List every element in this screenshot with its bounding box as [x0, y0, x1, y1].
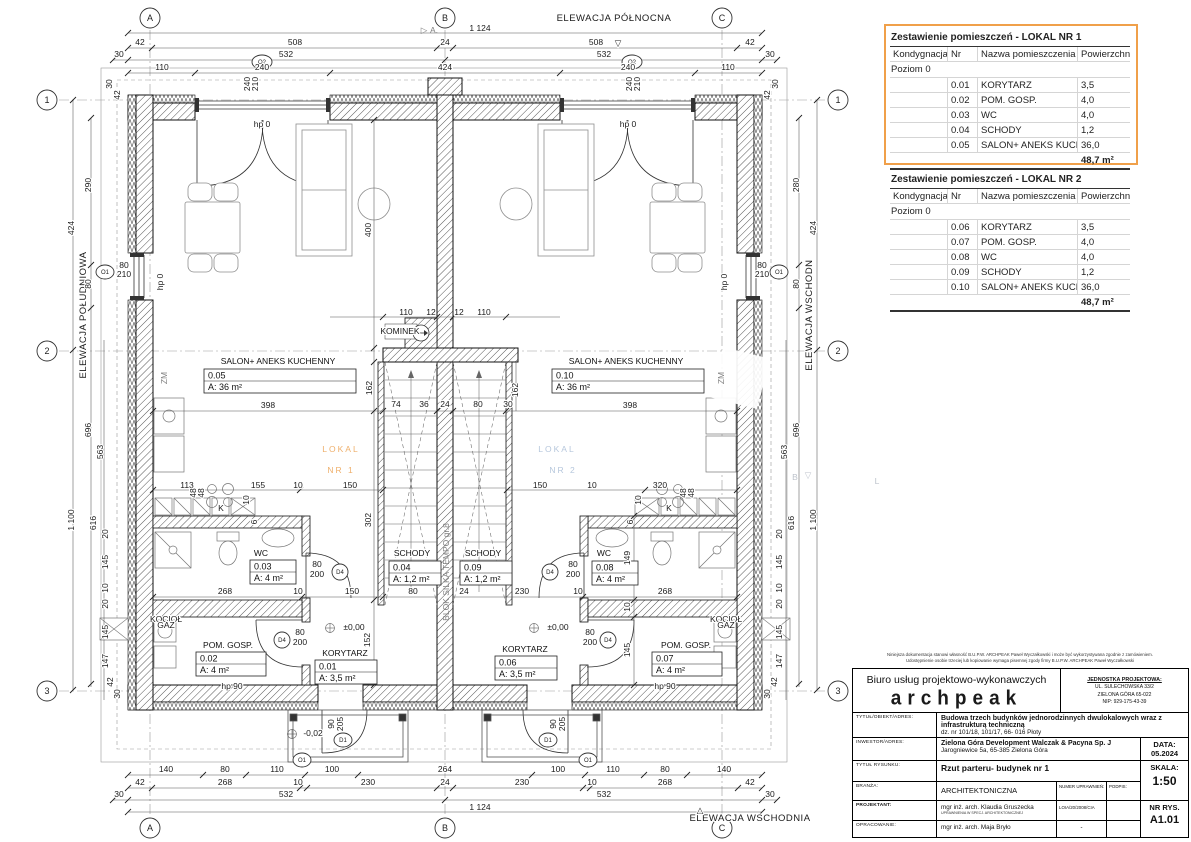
dim-label: 10: [774, 583, 784, 593]
dim-label: 563: [95, 445, 105, 459]
dim-label: 30: [104, 79, 114, 89]
dim-label: ▷: [421, 25, 428, 35]
watermark-lokal-2: NR 2: [549, 465, 576, 475]
dim-label: 12: [426, 307, 436, 317]
dim-label: 48: [196, 488, 206, 498]
elevation-east-right-label: ELEWACJA WSCHODN: [804, 259, 815, 370]
axis-c-bottom-label: C: [719, 823, 726, 833]
dim-label: 424: [438, 62, 452, 72]
dim-label: 200: [310, 569, 324, 579]
dim-label: 302: [363, 513, 373, 527]
dim-label: hp 0: [620, 119, 637, 129]
dim-label: 268: [218, 586, 232, 596]
dim-label: 240: [255, 62, 269, 72]
dim-label: 30: [762, 689, 772, 699]
table-row: 0.05SALON+ ANEKS KUCH...36,0: [890, 138, 1130, 153]
dim-label: A.: [430, 25, 438, 35]
dim-label: GAZ: [157, 620, 174, 630]
dim-label: 400: [363, 223, 373, 237]
dim-label: 1 100: [808, 509, 818, 531]
elevation-north-label: ELEWACJA PÓŁNOCNA: [557, 13, 672, 24]
dim-label: 230: [361, 777, 375, 787]
dim-label: ±0,00: [547, 622, 568, 632]
dim-label: 268: [218, 777, 232, 787]
dim-label: 210: [250, 77, 260, 91]
dim-label: 508: [288, 37, 302, 47]
dim-label: KOMINEK: [380, 326, 420, 336]
dim-label: 110: [606, 764, 620, 774]
dim-label: 152: [362, 633, 372, 647]
dim-label: 280: [791, 178, 801, 192]
room-name-label: SALON+ ANEKS KUCHENNY: [221, 356, 336, 366]
dim-label: hp 90: [221, 681, 243, 691]
schedule-title: Zestawienie pomieszczeń - LOKAL NR 2: [890, 172, 1130, 189]
table-row: 0.07POM. GOSP.4,0: [890, 235, 1130, 250]
dim-label: 30: [112, 689, 122, 699]
sheet-number-cell: NR RYS. A1.01: [1141, 801, 1188, 837]
dim-label: K: [666, 503, 672, 513]
dim-label: 10: [241, 495, 251, 505]
dim-label: 80: [568, 559, 578, 569]
room-area: A: 1,2 m²: [464, 574, 501, 584]
room-name-label: SCHODY: [465, 548, 502, 558]
window-o1-right-label: O1: [775, 270, 784, 276]
dim-label: 205: [335, 717, 345, 731]
room-area: A: 4 m²: [596, 574, 625, 584]
dim-label: 110: [270, 764, 284, 774]
dim-label: -0,02: [303, 728, 323, 738]
dim-label: 24: [440, 399, 450, 409]
designer-signature-cell: [1107, 801, 1141, 821]
dim-label: 80: [220, 764, 230, 774]
designer-label: PROJEKTANT:: [853, 801, 937, 821]
dim-label: 80: [473, 399, 483, 409]
room-number: 0.07: [656, 654, 674, 664]
investor-value: Zielona Góra Development Walczak & Pacyn…: [937, 738, 1141, 761]
archpeak-logo: archpeak: [853, 687, 1060, 710]
table-row: 0.08WC4,0: [890, 250, 1130, 265]
door-d4-label: D4: [336, 570, 344, 576]
door-d4-label: D4: [604, 638, 612, 644]
dim-label: 10: [633, 495, 643, 505]
watermark-l: L: [875, 476, 880, 486]
room-number: 0.02: [200, 654, 218, 664]
watermark-bv: ▽: [805, 470, 812, 480]
dim-label: 532: [597, 49, 611, 59]
dim-label: 42: [112, 90, 122, 100]
dim-label: 110: [721, 62, 735, 72]
door-d1-right-label: D1: [544, 738, 552, 744]
dim-label: ZM: [159, 372, 169, 384]
dim-label: 42: [769, 677, 779, 687]
dim-label: 147: [100, 654, 110, 668]
designer-value: mgr inż. arch. Klaudia Gruszecka UPRAWNI…: [937, 801, 1057, 821]
dim-label: 696: [83, 423, 93, 437]
branch-value: ARCHITEKTONICZNA: [937, 782, 1057, 801]
room-name-label: KORYTARZ: [502, 644, 548, 654]
dim-label: 145: [774, 555, 784, 569]
dim-label: 10: [293, 480, 303, 490]
window-o1-porch-right-label: O1: [584, 758, 593, 764]
dim-label: 80: [791, 279, 801, 289]
dim-label: 20: [100, 529, 110, 539]
dim-label: 149: [622, 551, 632, 565]
dim-label: 240: [621, 62, 635, 72]
disclaimer-text: Niniejsza dokumentacja stanowi własność …: [853, 652, 1187, 664]
dim-label: 30: [765, 789, 775, 799]
dim-label: 48: [686, 488, 696, 498]
room-name-label: SCHODY: [394, 548, 431, 558]
axis-c-top-label: C: [719, 13, 726, 23]
schedule-header: Kondygnacja Nr Nazwa pomieszczenia Powie…: [890, 189, 1130, 204]
axis-1-left-label: 1: [44, 95, 49, 105]
room-area: A: 4 m²: [254, 573, 283, 583]
room-number: 0.09: [464, 563, 482, 573]
watermark-lokal-2: LOKAL: [538, 444, 575, 454]
dim-label: 42: [135, 777, 145, 787]
object-label: TYTUŁ/OBIEKT/ADRES:: [853, 713, 937, 738]
dim-label: 30: [770, 79, 780, 89]
dim-label: 10: [587, 777, 597, 787]
room-area: A: 3,5 m²: [319, 673, 356, 683]
dim-label: 398: [623, 400, 637, 410]
dim-label: 10: [622, 602, 632, 612]
dim-label: 264: [438, 764, 452, 774]
dim-label: 20: [774, 599, 784, 609]
floor-plan: SALON+ ANEKS KUCHENNY0.05A: 36 m²SALON+ …: [0, 0, 882, 842]
dim-label: 398: [261, 400, 275, 410]
schedule-total: 48,7 m²: [890, 295, 1130, 312]
table-row: 0.09SCHODY1,2: [890, 265, 1130, 280]
dim-label: 10: [293, 777, 303, 787]
room-number: 0.05: [208, 371, 226, 381]
axis-3-right-label: 3: [835, 686, 840, 696]
scale-cell: SKALA: 1:50: [1141, 761, 1188, 801]
dim-label: 74: [391, 399, 401, 409]
axis-2-right-label: 2: [835, 346, 840, 356]
room-area: A: 4 m²: [656, 665, 685, 675]
dim-label: 140: [717, 764, 731, 774]
dim-label: 616: [786, 516, 796, 530]
room-name-label: WC: [254, 548, 268, 558]
dim-label: 80: [660, 764, 670, 774]
dim-label: 145: [100, 625, 110, 639]
table-row: 0.04SCHODY1,2: [890, 123, 1130, 138]
editor-number: -: [1057, 821, 1107, 837]
dim-label: 6: [249, 519, 259, 524]
table-row: 0.02POM. GOSP.4,0: [890, 93, 1130, 108]
dim-label: hp 0: [254, 119, 271, 129]
dim-label: 80: [408, 586, 418, 596]
dim-label: 150: [345, 586, 359, 596]
room-area: A: 36 m²: [556, 382, 590, 392]
dim-label: 10: [100, 583, 110, 593]
dim-label: 1 124: [469, 23, 491, 33]
dim-label: 150: [533, 480, 547, 490]
dim-label: 80: [83, 279, 93, 289]
dim-label: GAZ: [717, 620, 734, 630]
dim-label: 110: [155, 62, 169, 72]
watermark-lokal-1: LOKAL: [322, 444, 359, 454]
license-number-label: NUMER UPRAWNIEŃ:: [1057, 782, 1107, 801]
dim-label: 424: [808, 221, 818, 235]
window-o1-left-label: O1: [101, 270, 110, 276]
room-area: A: 4 m²: [200, 665, 229, 675]
dim-label: 145: [100, 555, 110, 569]
schedule-level-row: Poziom 0: [890, 204, 1130, 220]
dim-label: 508: [589, 37, 603, 47]
dim-label: 20: [774, 529, 784, 539]
dim-label: 10: [293, 586, 303, 596]
dim-label: ZM: [716, 372, 726, 384]
dim-label: 24: [440, 777, 450, 787]
dim-label: 42: [745, 777, 755, 787]
dim-label: 24: [459, 586, 469, 596]
door-d1-left-label: D1: [339, 738, 347, 744]
room-number: 0.04: [393, 563, 411, 573]
axis-a-top-label: A: [147, 13, 153, 23]
room-schedule-lokal-1: Zestawienie pomieszczeń - LOKAL NR 1 Kon…: [890, 30, 1130, 170]
dim-label: 320: [653, 480, 667, 490]
dim-label: 12: [454, 307, 464, 317]
dim-label: 6: [625, 519, 635, 524]
window-o1-porch-left-label: O1: [298, 758, 307, 764]
dim-label: 210: [117, 269, 131, 279]
room-name-label: WC: [597, 548, 611, 558]
dim-label: 110: [477, 307, 491, 317]
dim-label: 268: [658, 586, 672, 596]
dim-label: 24: [440, 37, 450, 47]
axis-b-bottom-label: B: [442, 823, 448, 833]
dim-label: BLOK SILKA TEMPO gr.8: [441, 523, 451, 621]
room-area: A: 1,2 m²: [393, 574, 430, 584]
dim-label: 145: [774, 625, 784, 639]
schedule-level-row: Poziom 0: [890, 62, 1130, 78]
table-row: 0.10SALON+ ANEKS KUCH...36,0: [890, 280, 1130, 295]
room-number: 0.06: [499, 658, 517, 668]
door-d4-label: D4: [278, 638, 286, 644]
axis-2-left-label: 2: [44, 346, 49, 356]
drawing-title-label: TYTUŁ RYSUNKU:: [853, 761, 937, 782]
dim-label: 532: [279, 49, 293, 59]
title-block: Biuro usług projektowo-wykonawczych arch…: [852, 668, 1189, 838]
dim-label: 10: [587, 480, 597, 490]
room-number: 0.08: [596, 563, 614, 573]
dim-label: 80: [295, 627, 305, 637]
axis-1-right-label: 1: [835, 95, 840, 105]
branch-label: BRANŻA:: [853, 782, 937, 801]
dim-label: hp 0: [719, 273, 729, 290]
watermark-lokal-1: NR 1: [327, 465, 354, 475]
dim-label: 1 124: [469, 802, 491, 812]
dim-label: 200: [583, 637, 597, 647]
dim-label: 30: [503, 399, 513, 409]
room-number: 0.01: [319, 662, 337, 672]
dim-label: 10: [573, 586, 583, 596]
schedule-header: Kondygnacja Nr Nazwa pomieszczenia Powie…: [890, 47, 1130, 62]
dim-label: 210: [632, 77, 642, 91]
dim-label: 200: [293, 637, 307, 647]
dim-label: 42: [762, 90, 772, 100]
dim-label: 42: [105, 677, 115, 687]
dim-label: 205: [557, 717, 567, 731]
dim-label: 155: [251, 480, 265, 490]
dim-label: 147: [774, 654, 784, 668]
dim-label: 100: [551, 764, 565, 774]
axis-3-left-label: 3: [44, 686, 49, 696]
room-number: 0.03: [254, 562, 272, 572]
dim-label: 268: [658, 777, 672, 787]
drawing-sheet: SALON+ ANEKS KUCHENNY0.05A: 36 m²SALON+ …: [0, 0, 1191, 842]
door-d4-label: D4: [546, 570, 554, 576]
table-row: 0.01KORYTARZ3,5: [890, 78, 1130, 93]
dim-label: 80: [585, 627, 595, 637]
dim-label: 30: [765, 49, 775, 59]
right-panel: Zestawienie pomieszczeń - LOKAL NR 1 Kon…: [882, 0, 1191, 842]
dim-label: 1 100: [66, 509, 76, 531]
dim-label: 162: [364, 381, 374, 395]
table-row: 0.03WC4,0: [890, 108, 1130, 123]
dim-label: 424: [66, 221, 76, 235]
dim-label: 140: [159, 764, 173, 774]
dim-label: 532: [279, 789, 293, 799]
dim-label: hp 0: [155, 273, 165, 290]
dim-label: 110: [399, 307, 413, 317]
elevation-east-bottom-label: ELEWACJA WSCHODNIA: [689, 813, 810, 824]
elevation-south-label: ELEWACJA POŁUDNIOWA: [78, 251, 89, 378]
date-cell: DATA: 05.2024: [1141, 738, 1188, 761]
dim-label: 100: [325, 764, 339, 774]
room-name-label: SALON+ ANEKS KUCHENNY: [569, 356, 684, 366]
schedule-title: Zestawienie pomieszczeń - LOKAL NR 1: [890, 30, 1130, 47]
dim-label: 616: [88, 516, 98, 530]
dim-label: 230: [515, 777, 529, 787]
dim-label: 30: [114, 789, 124, 799]
editor-value: mgr inż. arch. Maja Bryło: [937, 821, 1057, 837]
dim-label: hp 90: [654, 681, 676, 691]
signature-label: PODPIS:: [1107, 782, 1141, 801]
room-area: A: 3,5 m²: [499, 669, 536, 679]
axis-b-top-label: B: [442, 13, 448, 23]
editor-label: OPRACOWANIE:: [853, 821, 937, 837]
dim-label: ▽: [615, 38, 622, 48]
dim-label: 20: [100, 599, 110, 609]
dim-label: 532: [597, 789, 611, 799]
dim-label: 150: [343, 480, 357, 490]
office-cell: Biuro usług projektowo-wykonawczych arch…: [853, 669, 1061, 713]
dim-label: 36: [419, 399, 429, 409]
dim-label: 42: [745, 37, 755, 47]
dim-label: 80: [312, 559, 322, 569]
dim-label: 230: [515, 586, 529, 596]
room-schedule-lokal-2: Zestawienie pomieszczeń - LOKAL NR 2 Kon…: [890, 172, 1130, 312]
dim-label: ±0,00: [343, 622, 364, 632]
office-name: Biuro usług projektowo-wykonawczych: [853, 669, 1060, 686]
dim-label: 696: [791, 423, 801, 437]
room-name-label: POM. GOSP.: [661, 640, 711, 650]
room-name-label: POM. GOSP.: [203, 640, 253, 650]
drawing-title-value: Rzut parteru- budynek nr 1: [937, 761, 1141, 782]
editor-signature-cell: [1107, 821, 1141, 837]
investor-label: INWESTOR/ADRES:: [853, 738, 937, 761]
dim-label: K: [218, 503, 224, 513]
dim-label: 210: [755, 269, 769, 279]
room-name-label: KORYTARZ: [322, 648, 368, 658]
dim-label: 290: [83, 178, 93, 192]
design-unit-cell: JEDNOSTKA PROJEKTOWA: UL. SULECHOWSKA 33…: [1061, 669, 1188, 713]
dim-label: 145: [622, 643, 632, 657]
axis-a-bottom-label: A: [147, 823, 153, 833]
dim-label: 200: [566, 569, 580, 579]
dim-label: △: [697, 805, 704, 815]
dim-label: 162: [510, 383, 520, 397]
dim-label: 42: [135, 37, 145, 47]
dim-label: 563: [779, 445, 789, 459]
designer-number: LOIA/20/2008/CIA: [1057, 801, 1107, 821]
schedule-total: 48,7 m²: [890, 153, 1130, 170]
watermark-bv: B: [792, 472, 798, 482]
room-area: A: 36 m²: [208, 382, 242, 392]
object-value: Budowa trzech budynków jednorodzinnych d…: [937, 713, 1188, 738]
room-number: 0.10: [556, 371, 574, 381]
dim-label: 30: [114, 49, 124, 59]
table-row: 0.06KORYTARZ3,5: [890, 220, 1130, 235]
